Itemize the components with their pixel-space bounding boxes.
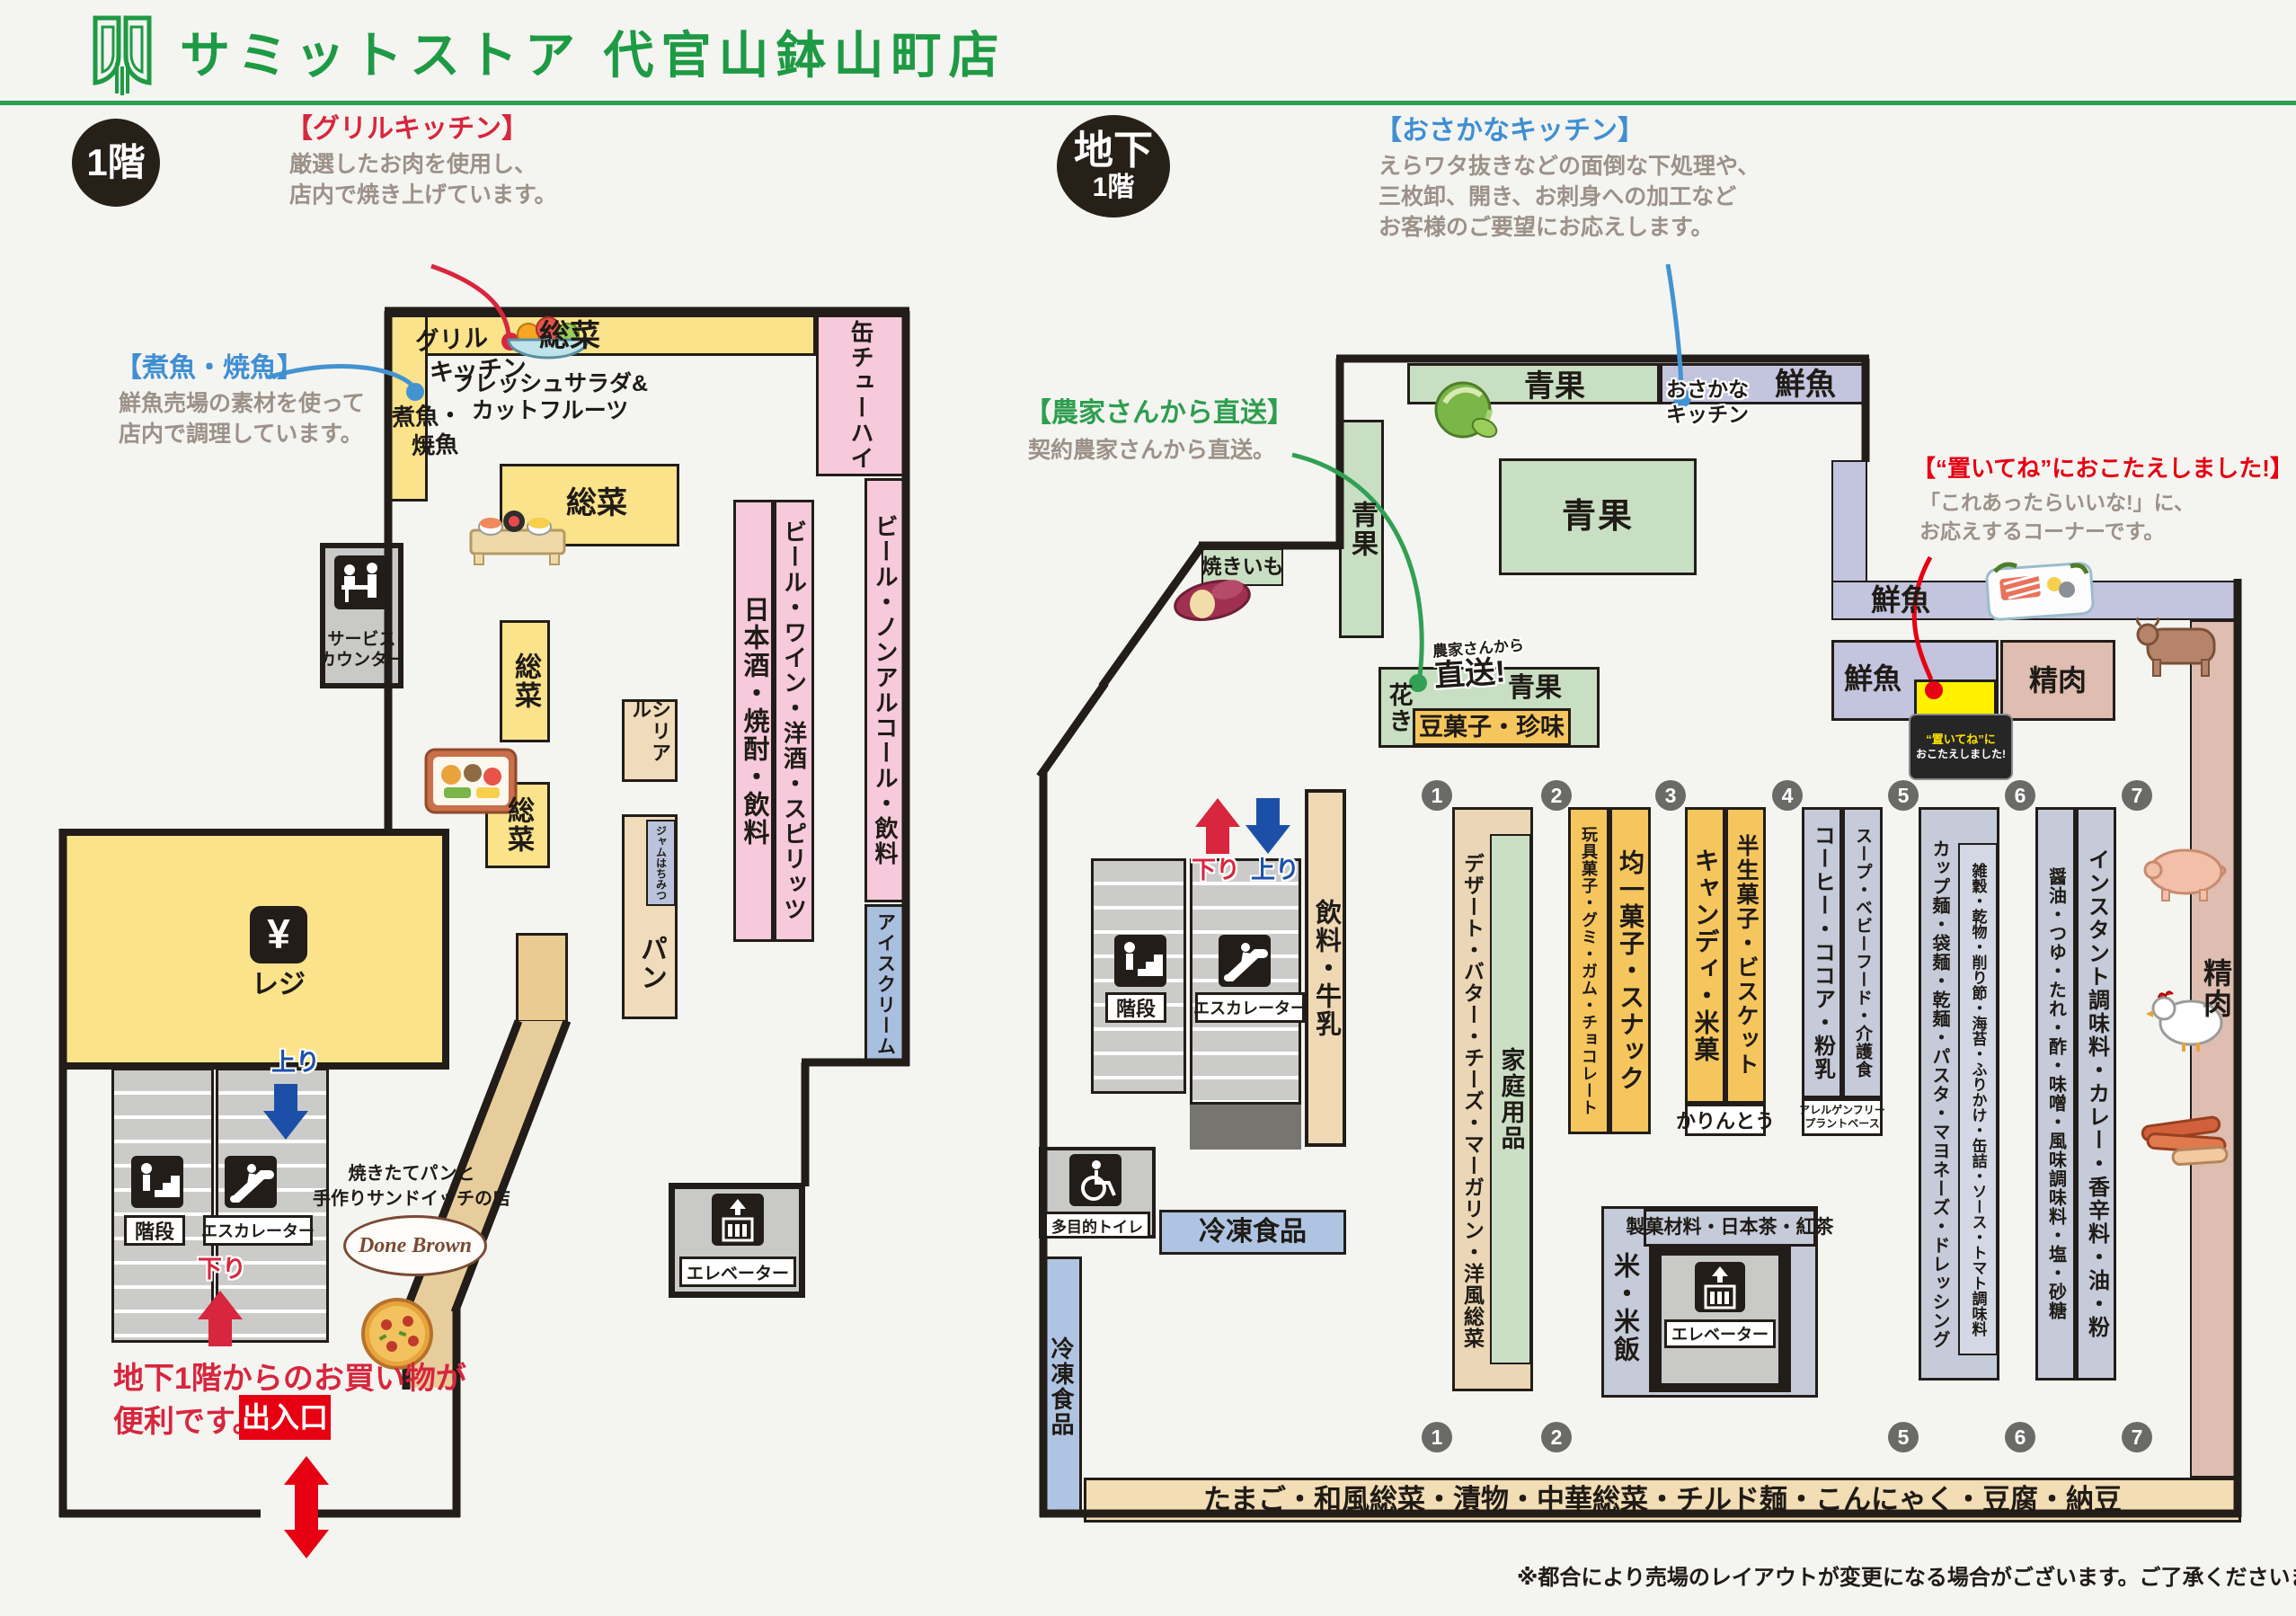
area-tan-fixture: [516, 933, 568, 1023]
header-divider: [0, 101, 2296, 105]
label-cereal: シリアル: [622, 699, 678, 782]
up-arrow-b1: [1246, 798, 1290, 854]
label-aisle3a: キャンディ・米菓: [1685, 807, 1725, 1104]
label-allergen2: プラントベース: [1804, 1117, 1879, 1131]
label-bread: パン: [625, 917, 676, 1010]
annotation-fish-body1: 鮮魚売場の素材を使って: [119, 390, 365, 417]
label-register: レジ: [243, 969, 315, 1001]
annotation-nouka-title: 【農家さんから直送】: [1024, 397, 1294, 430]
label-b1-shopping-note1: 地下1階からのお買い物が: [113, 1361, 466, 1398]
label-aisle5b: 雑穀・乾物・削り節・海苔・ふりかけ・缶詰・ソース・トマト調味料: [1958, 843, 1998, 1355]
label-down-1f: 下り: [198, 1255, 246, 1283]
label-service1: サービス: [328, 630, 396, 649]
label-aisle3b: 半生菓子・ビスケット: [1725, 807, 1766, 1104]
aisle-number-7-bottom: 7: [2122, 1422, 2152, 1452]
aisle-number-1-bottom: 1: [1422, 1422, 1452, 1452]
page-title: サミットストア 代官山鉢山町店: [180, 25, 1006, 85]
label-allergen: アレルゲンフリー プラントベース: [1802, 1098, 1883, 1136]
label-aisle2a: 玩具菓子・グミ・ガム・チョコレート: [1568, 807, 1609, 1134]
label-aisle4a: コーヒー・ココア・粉乳: [1802, 807, 1842, 1098]
annotation-osakana-body3: お客様のご要望にお応えします。: [1378, 214, 1714, 241]
label-inryo: 飲料・牛乳: [1305, 789, 1346, 1147]
label-fresh-salad2: カットフルーツ: [449, 399, 651, 422]
label-mamegashi: 豆菓子・珍味: [1413, 708, 1571, 746]
escalator-b1: [1190, 858, 1301, 1105]
aisle-number-5-top: 5: [1888, 780, 1919, 811]
label-aisle4b: スープ・ベビーフード・介護食: [1842, 807, 1883, 1098]
label-beer-nonalcohol: ビール・ノンアルコール・飲料: [864, 478, 906, 902]
stairs-1f: [111, 1068, 214, 1343]
annotation-osakana-body2: 三枚卸、開き、お刺身への加工など: [1378, 183, 1736, 210]
label-service-counter: サービス カウンター: [320, 627, 403, 674]
label-nihonshu: 日本酒・焼酎・飲料: [733, 500, 774, 942]
label-sengyo-band: 鮮魚: [1871, 582, 1930, 618]
label-frozen-v: 冷凍食品: [1041, 1256, 1082, 1517]
escalator-landing-b1: [1190, 1105, 1301, 1150]
label-stairs-1f: 階段: [124, 1215, 185, 1246]
entrance-double-arrow: [284, 1456, 329, 1558]
aisle-number-7-top: 7: [2122, 780, 2152, 811]
label-aisle2b: 均一菓子・スナック: [1609, 807, 1651, 1134]
aisle-number-3-top: 3: [1655, 780, 1686, 811]
aisle-number-2-bottom: 2: [1541, 1422, 1572, 1452]
label-seiniku-band: 精肉: [2195, 917, 2237, 1061]
label-hanaki: 花き: [1382, 672, 1414, 744]
label-elevator-b1: エレベーター: [1664, 1319, 1776, 1348]
yen-icon: ¥: [250, 906, 307, 963]
label-chilled-band: たまご・和風総菜・漬物・中華総菜・チルド麺・こんにゃく・豆腐・納豆: [1084, 1478, 2241, 1523]
label-sozai-b: 総菜: [500, 620, 550, 742]
label-allergen1: アレルゲンフリー: [1799, 1104, 1885, 1117]
aisle-number-6-top: 6: [2005, 780, 2035, 811]
label-fresh-salad1: フレッシュサラダ&: [449, 372, 651, 395]
label-up-b1: 上り: [1251, 856, 1299, 884]
area-sengyo-column: [1831, 460, 1867, 584]
label-osakana2: キッチン: [1666, 403, 1749, 428]
label-bakery-line2: 手作りサンドイッチの店: [313, 1188, 510, 1210]
oitene-badge-line2: おこたえしました!: [1916, 748, 2006, 762]
label-escalator-1f: エスカレーター: [203, 1215, 313, 1246]
label-up-1f: 上り: [271, 1048, 320, 1077]
label-stairs-b1: 階段: [1105, 992, 1166, 1023]
label-karinto: かりんとう: [1685, 1104, 1766, 1136]
label-down-b1: 下り: [1192, 856, 1240, 884]
oitene-badge-line1: “置いてね”に: [1926, 733, 1996, 748]
annotation-grill-body1: 厳選したお肉を使用し、: [289, 151, 536, 178]
label-entrance-exit: 出入口: [239, 1395, 331, 1440]
annotation-grill-body2: 店内で焼き上げています。: [289, 182, 557, 209]
label-frozen-h: 冷凍食品: [1159, 1210, 1346, 1255]
label-grill-hand1: グリル: [414, 324, 489, 357]
label-seika-hanaki: 青果: [1508, 672, 1562, 705]
pizza-illustration: [363, 1300, 431, 1368]
label-nizakana2: 焼魚: [411, 431, 458, 460]
label-yakiimo: 焼きいも: [1201, 548, 1283, 586]
label-sengyo-box: 鮮魚: [1844, 661, 1902, 696]
label-sengyo-top: 鮮魚: [1775, 367, 1836, 404]
annotation-fish-title: 【煮魚・焼魚】: [115, 352, 304, 385]
label-seika-top: 青果: [1524, 368, 1585, 405]
floor1-badge: 1階: [72, 119, 160, 207]
label-bakery-line1: 焼きたてパンと: [331, 1163, 492, 1185]
label-seikazairyo: 製菓材料・日本茶・紅茶: [1644, 1209, 1816, 1247]
label-seiniku-box: 精肉: [2000, 640, 2115, 721]
label-seika-center: 青果: [1499, 458, 1697, 575]
annotation-nouka-body1: 契約農家さんから直送。: [1028, 437, 1275, 464]
label-aisle1a: デザート・バター・チーズ・マーガリン・洋風総菜: [1454, 818, 1490, 1384]
aisle-number-6-bottom: 6: [2005, 1422, 2035, 1452]
label-service2: カウンター: [319, 651, 404, 670]
aisle-number-4-top: 4: [1772, 780, 1803, 811]
basement-badge-line1: 地下: [1074, 131, 1153, 171]
label-icecream: アイスクリーム: [864, 904, 906, 1064]
done-brown-logo: Done Brown: [343, 1215, 487, 1276]
footnote: ※都合により売場のレイアウトが変更になる場合がございます。ご了承くださいませ。: [1517, 1566, 2296, 1592]
label-beer-wine: ビール・ワイン・洋酒・スピリッツ: [774, 500, 814, 942]
down-arrow-b1: [1195, 798, 1240, 854]
label-sozai-top: 総菜: [539, 318, 600, 355]
annotation-oitene-body2: お応えするコーナーです。: [1919, 519, 2164, 545]
oitene-badge: “置いてね”に おこたえしました!: [1909, 714, 2013, 780]
basement-badge: 地下 1階: [1057, 115, 1170, 218]
floor1-badge-label: 1階: [86, 144, 145, 182]
annotation-osakana-title: 【おさかなキッチン】: [1375, 115, 1644, 147]
annotation-oitene-title: 【“置いてね”におこたえしました!】: [1912, 455, 2293, 483]
stairs-b1: [1091, 858, 1186, 1094]
label-kanchuhai: 缶チューハイ: [816, 315, 906, 476]
label-aisle6a: 醤油・つゆ・たれ・酢・味噌・風味調味料・塩・砂糖: [2035, 807, 2076, 1381]
annotation-grill-title: 【グリルキッチン】: [286, 113, 528, 146]
summit-logo-icon: [77, 7, 167, 97]
basement-badge-line2: 1階: [1093, 174, 1135, 201]
label-seika-left: 青果: [1339, 420, 1384, 638]
annotation-fish-body2: 店内で調理しています。: [119, 421, 363, 448]
annotation-oitene-body1: 「これあったらいいな!」に、: [1919, 491, 2194, 516]
label-osakana1: おさかな: [1666, 377, 1749, 403]
label-sozai-a: 総菜: [566, 485, 627, 522]
label-aisle1b: 家庭用品: [1490, 834, 1531, 1364]
aisle-number-5-bottom: 5: [1888, 1422, 1919, 1452]
label-aisle6b: インスタント調味料・カレー・香辛料・油・粉: [2076, 807, 2116, 1381]
label-escalator-b1: エスカレーター: [1195, 992, 1305, 1023]
label-elevator-1f: エレベーター: [679, 1256, 796, 1287]
label-aisle5a: カップ麺・袋麺・乾麺・パスタ・マヨネーズ・ドレッシング: [1920, 813, 1958, 1375]
annotation-osakana-body1: えらワタ抜きなどの面倒な下処理や、: [1378, 153, 1760, 180]
label-kome: 米・米飯: [1605, 1231, 1643, 1384]
label-sozai-c: 総菜: [485, 782, 550, 868]
aisle-number-2-top: 2: [1541, 780, 1572, 811]
aisle-number-1-top: 1: [1422, 780, 1452, 811]
store-floor-map: サミットストア 代官山鉢山町店 1階 【グリルキッチン】 厳選したお肉を使用し、…: [0, 0, 2296, 1616]
label-jam-honey: ジャムはちみつ: [646, 820, 676, 906]
label-chokuso-big: 直送!: [1433, 653, 1507, 695]
label-accessible-toilet: 多目的トイレ: [1044, 1212, 1150, 1239]
